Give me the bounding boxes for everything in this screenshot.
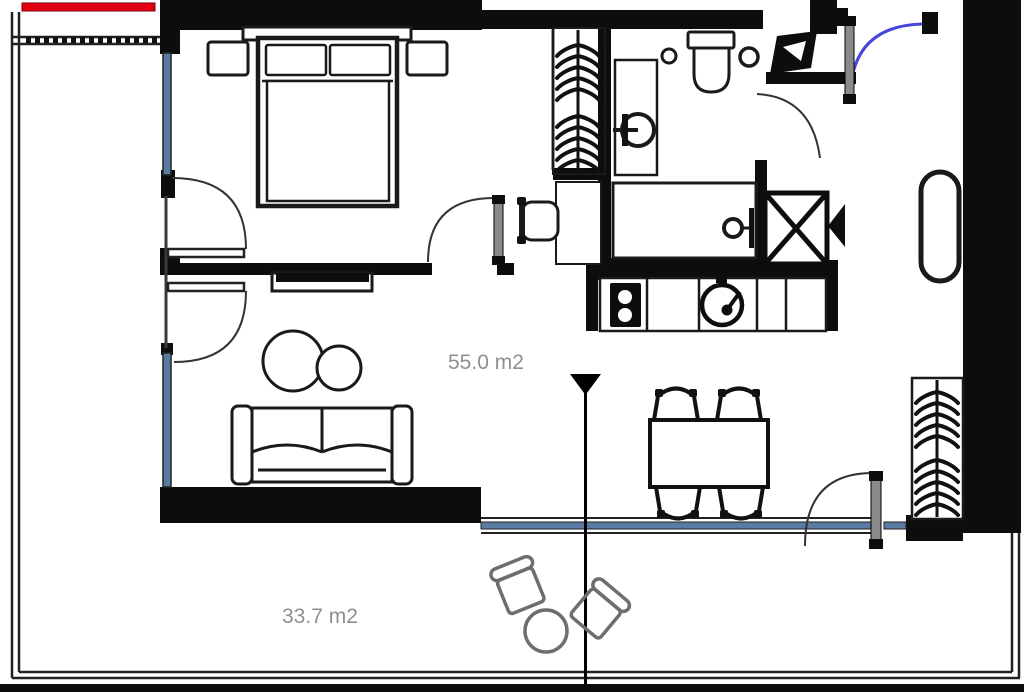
balcony-area-label: 33.7 m2 [282,605,358,628]
desk [556,182,601,264]
sofa [232,406,412,484]
tv-console [272,273,372,291]
coffee-tables [263,331,361,391]
floor-plan-svg: 55.0 m2 33.7 m2 [0,0,1024,692]
desk-and-chair [517,182,601,264]
balcony-window-right [884,522,906,529]
floor-drain [662,49,676,63]
pillow-right [330,45,390,75]
balcony-table [525,610,567,652]
balcony-door [805,471,883,549]
blanket [267,81,389,201]
bottom-edge-bar [0,684,1024,692]
closet [553,28,605,174]
living-room-door [428,195,505,265]
main-area-label: 55.0 m2 [448,351,524,374]
balcony-chair-1 [489,555,548,616]
drain-2 [740,48,758,66]
toilet-bowl [694,48,729,92]
bedroom-window [163,53,171,175]
hall-wardrobe [912,378,963,519]
radiator [921,172,959,281]
shaft-arrow [828,204,845,247]
toilet-tank [688,32,734,48]
dotted-line [26,37,157,43]
shaft [765,193,845,264]
balcony-chair-2 [567,576,632,641]
dining-table [650,420,768,487]
nightstand-left [208,42,248,75]
red-marker-bar [22,3,155,11]
balcony-furniture [489,555,632,652]
pillow-left [266,45,326,75]
bathroom-door-arc [757,94,820,158]
dining-set [650,389,768,519]
bed [208,27,447,206]
balcony-window [481,522,871,529]
living-window-left [163,353,171,487]
floor-plan-canvas: 55.0 m2 33.7 m2 [0,0,1024,692]
entry-door [843,16,922,104]
cooktop [610,283,641,327]
nightstand-right [407,42,447,75]
desk-chair [522,202,558,240]
